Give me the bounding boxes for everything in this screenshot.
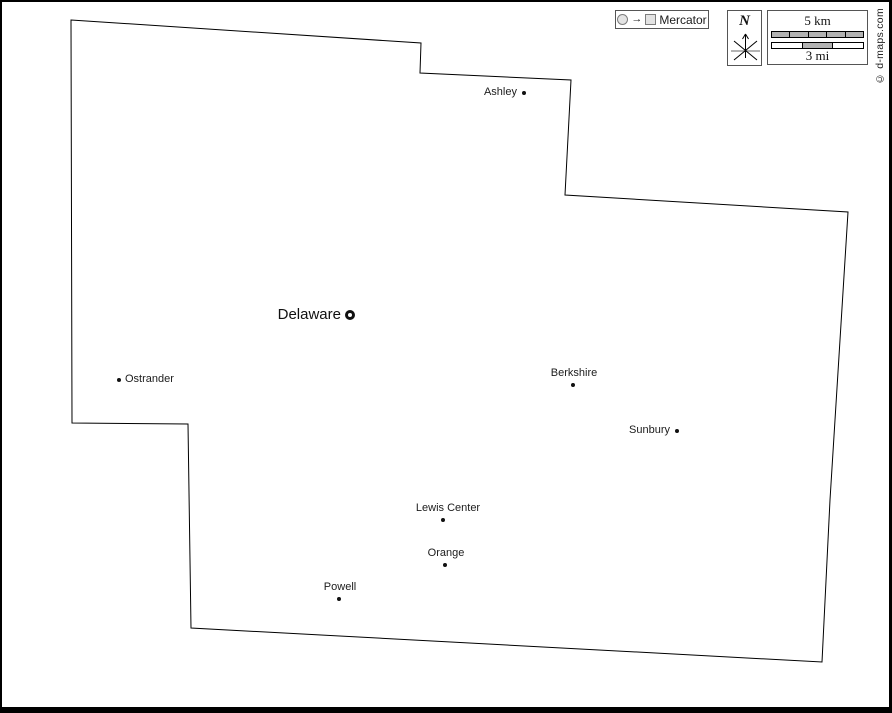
city-label-berkshire: Berkshire (551, 367, 597, 380)
scale-km-label: 5 km (768, 13, 867, 29)
copyright-credit: © d-maps.com (874, 8, 886, 84)
flat-map-square-icon (645, 14, 656, 25)
scale-mi-label: 3 mi (768, 48, 867, 64)
city-label-ashley: Ashley (484, 86, 517, 99)
city-label-lewis-center: Lewis Center (416, 502, 480, 515)
city-marker-ashley (522, 91, 526, 95)
projection-label: Mercator (659, 13, 706, 27)
scale-segment (845, 32, 863, 37)
city-marker-berkshire (571, 383, 575, 387)
scale-segment (789, 32, 807, 37)
arrow-right-icon: → (631, 15, 642, 24)
city-label-sunbury: Sunbury (629, 424, 670, 437)
city-label-orange: Orange (428, 547, 465, 560)
compass-star-icon (728, 31, 763, 63)
city-markers-layer: AshleyDelawareOstranderBerkshireSunburyL… (0, 0, 892, 713)
scale-segment (826, 32, 844, 37)
city-marker-lewis-center (441, 518, 445, 522)
city-marker-ostrander (117, 378, 121, 382)
map-canvas: AshleyDelawareOstranderBerkshireSunburyL… (0, 0, 892, 713)
city-marker-sunbury (675, 429, 679, 433)
globe-circle-icon (617, 14, 628, 25)
scale-segment (772, 32, 789, 37)
city-marker-orange (443, 563, 447, 567)
city-label-ostrander: Ostrander (125, 373, 174, 386)
city-label-powell: Powell (324, 581, 356, 594)
projection-legend: → Mercator (615, 10, 709, 29)
city-marker-delaware (345, 310, 355, 320)
city-marker-powell (337, 597, 341, 601)
compass-rose: N (727, 10, 762, 66)
compass-north-label: N (728, 13, 761, 30)
city-label-delaware: Delaware (278, 306, 341, 324)
scale-segment (808, 32, 826, 37)
scale-bar-km (771, 31, 864, 38)
scale-bar: 5 km 3 mi (767, 10, 868, 65)
